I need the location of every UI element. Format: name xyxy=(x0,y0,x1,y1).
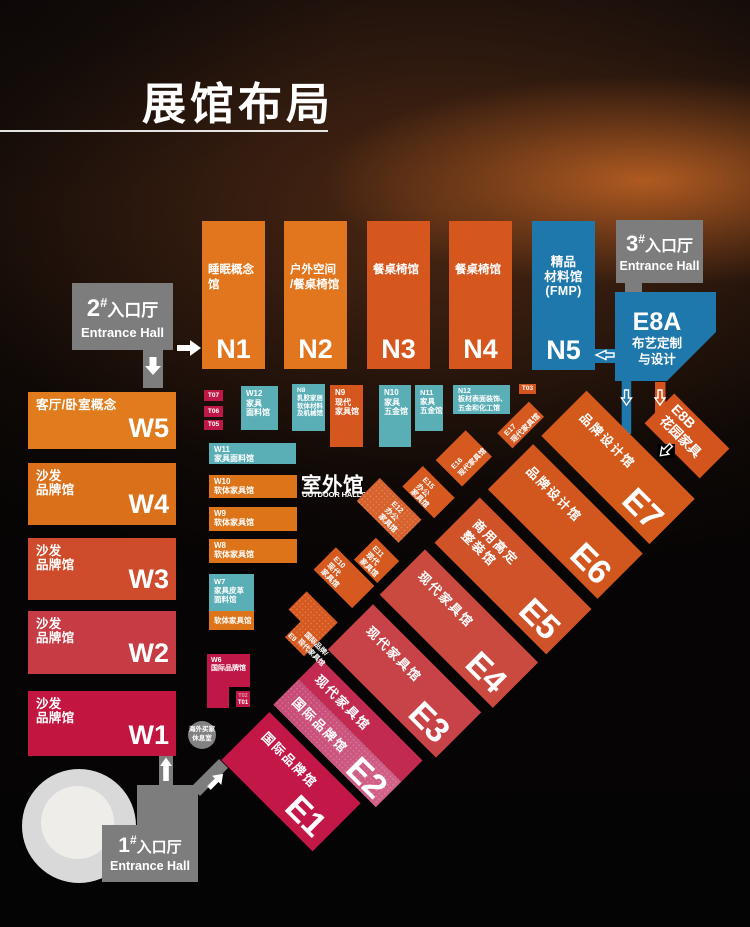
svg-text:布艺定制: 布艺定制 xyxy=(632,336,682,351)
svg-text:E8A: E8A xyxy=(633,308,682,336)
svg-text:与设计: 与设计 xyxy=(638,352,676,367)
